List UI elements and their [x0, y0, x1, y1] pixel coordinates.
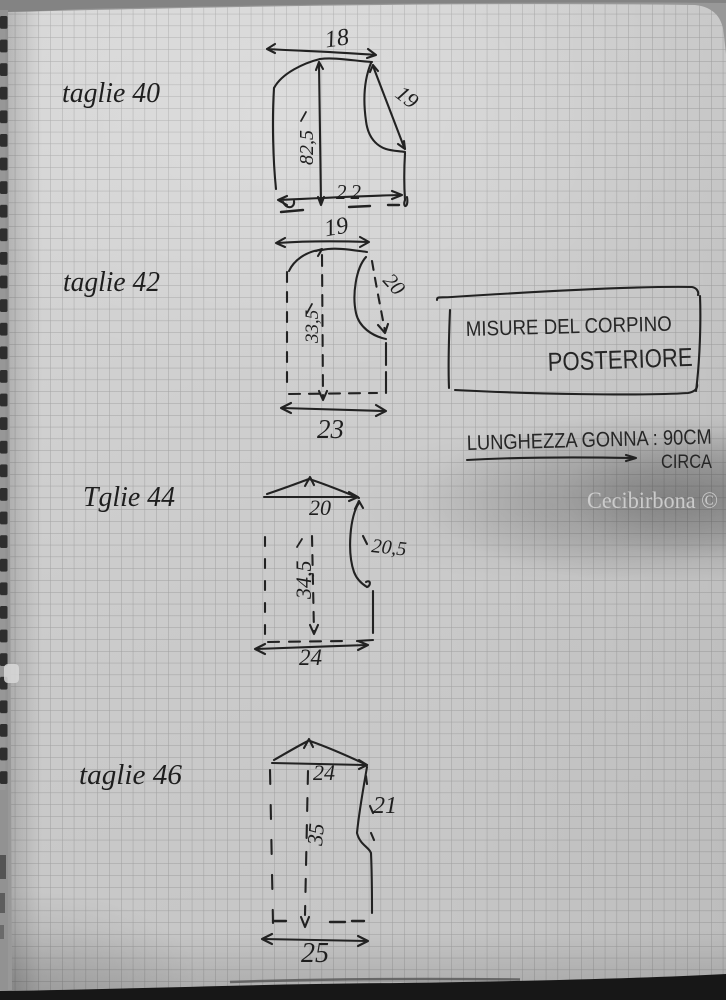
svg-text:33,5: 33,5 [302, 310, 323, 344]
svg-text:20: 20 [309, 495, 331, 520]
svg-text:19: 19 [322, 213, 350, 243]
svg-text:POSTERIORE: POSTERIORE [547, 342, 693, 377]
svg-text:18: 18 [323, 24, 350, 53]
svg-text:taglie 46: taglie 46 [79, 759, 182, 791]
svg-text:24: 24 [313, 760, 335, 785]
svg-text:CIRCA: CIRCA [661, 452, 712, 473]
svg-text:23: 23 [317, 414, 344, 444]
svg-text:Cecibirbona ©: Cecibirbona © [587, 488, 718, 514]
svg-text:34,5: 34,5 [291, 561, 316, 601]
svg-text:21: 21 [373, 793, 397, 819]
svg-text:24: 24 [299, 645, 322, 670]
svg-text:Tglie 44: Tglie 44 [83, 481, 175, 513]
svg-text:35: 35 [302, 822, 329, 847]
svg-text:taglie 40: taglie 40 [62, 77, 160, 109]
svg-text:25: 25 [301, 938, 329, 969]
svg-text:20,5: 20,5 [370, 535, 407, 561]
svg-text:taglie 42: taglie 42 [63, 266, 160, 298]
svg-text:82,5: 82,5 [296, 130, 318, 165]
svg-text:22: 22 [336, 180, 365, 204]
